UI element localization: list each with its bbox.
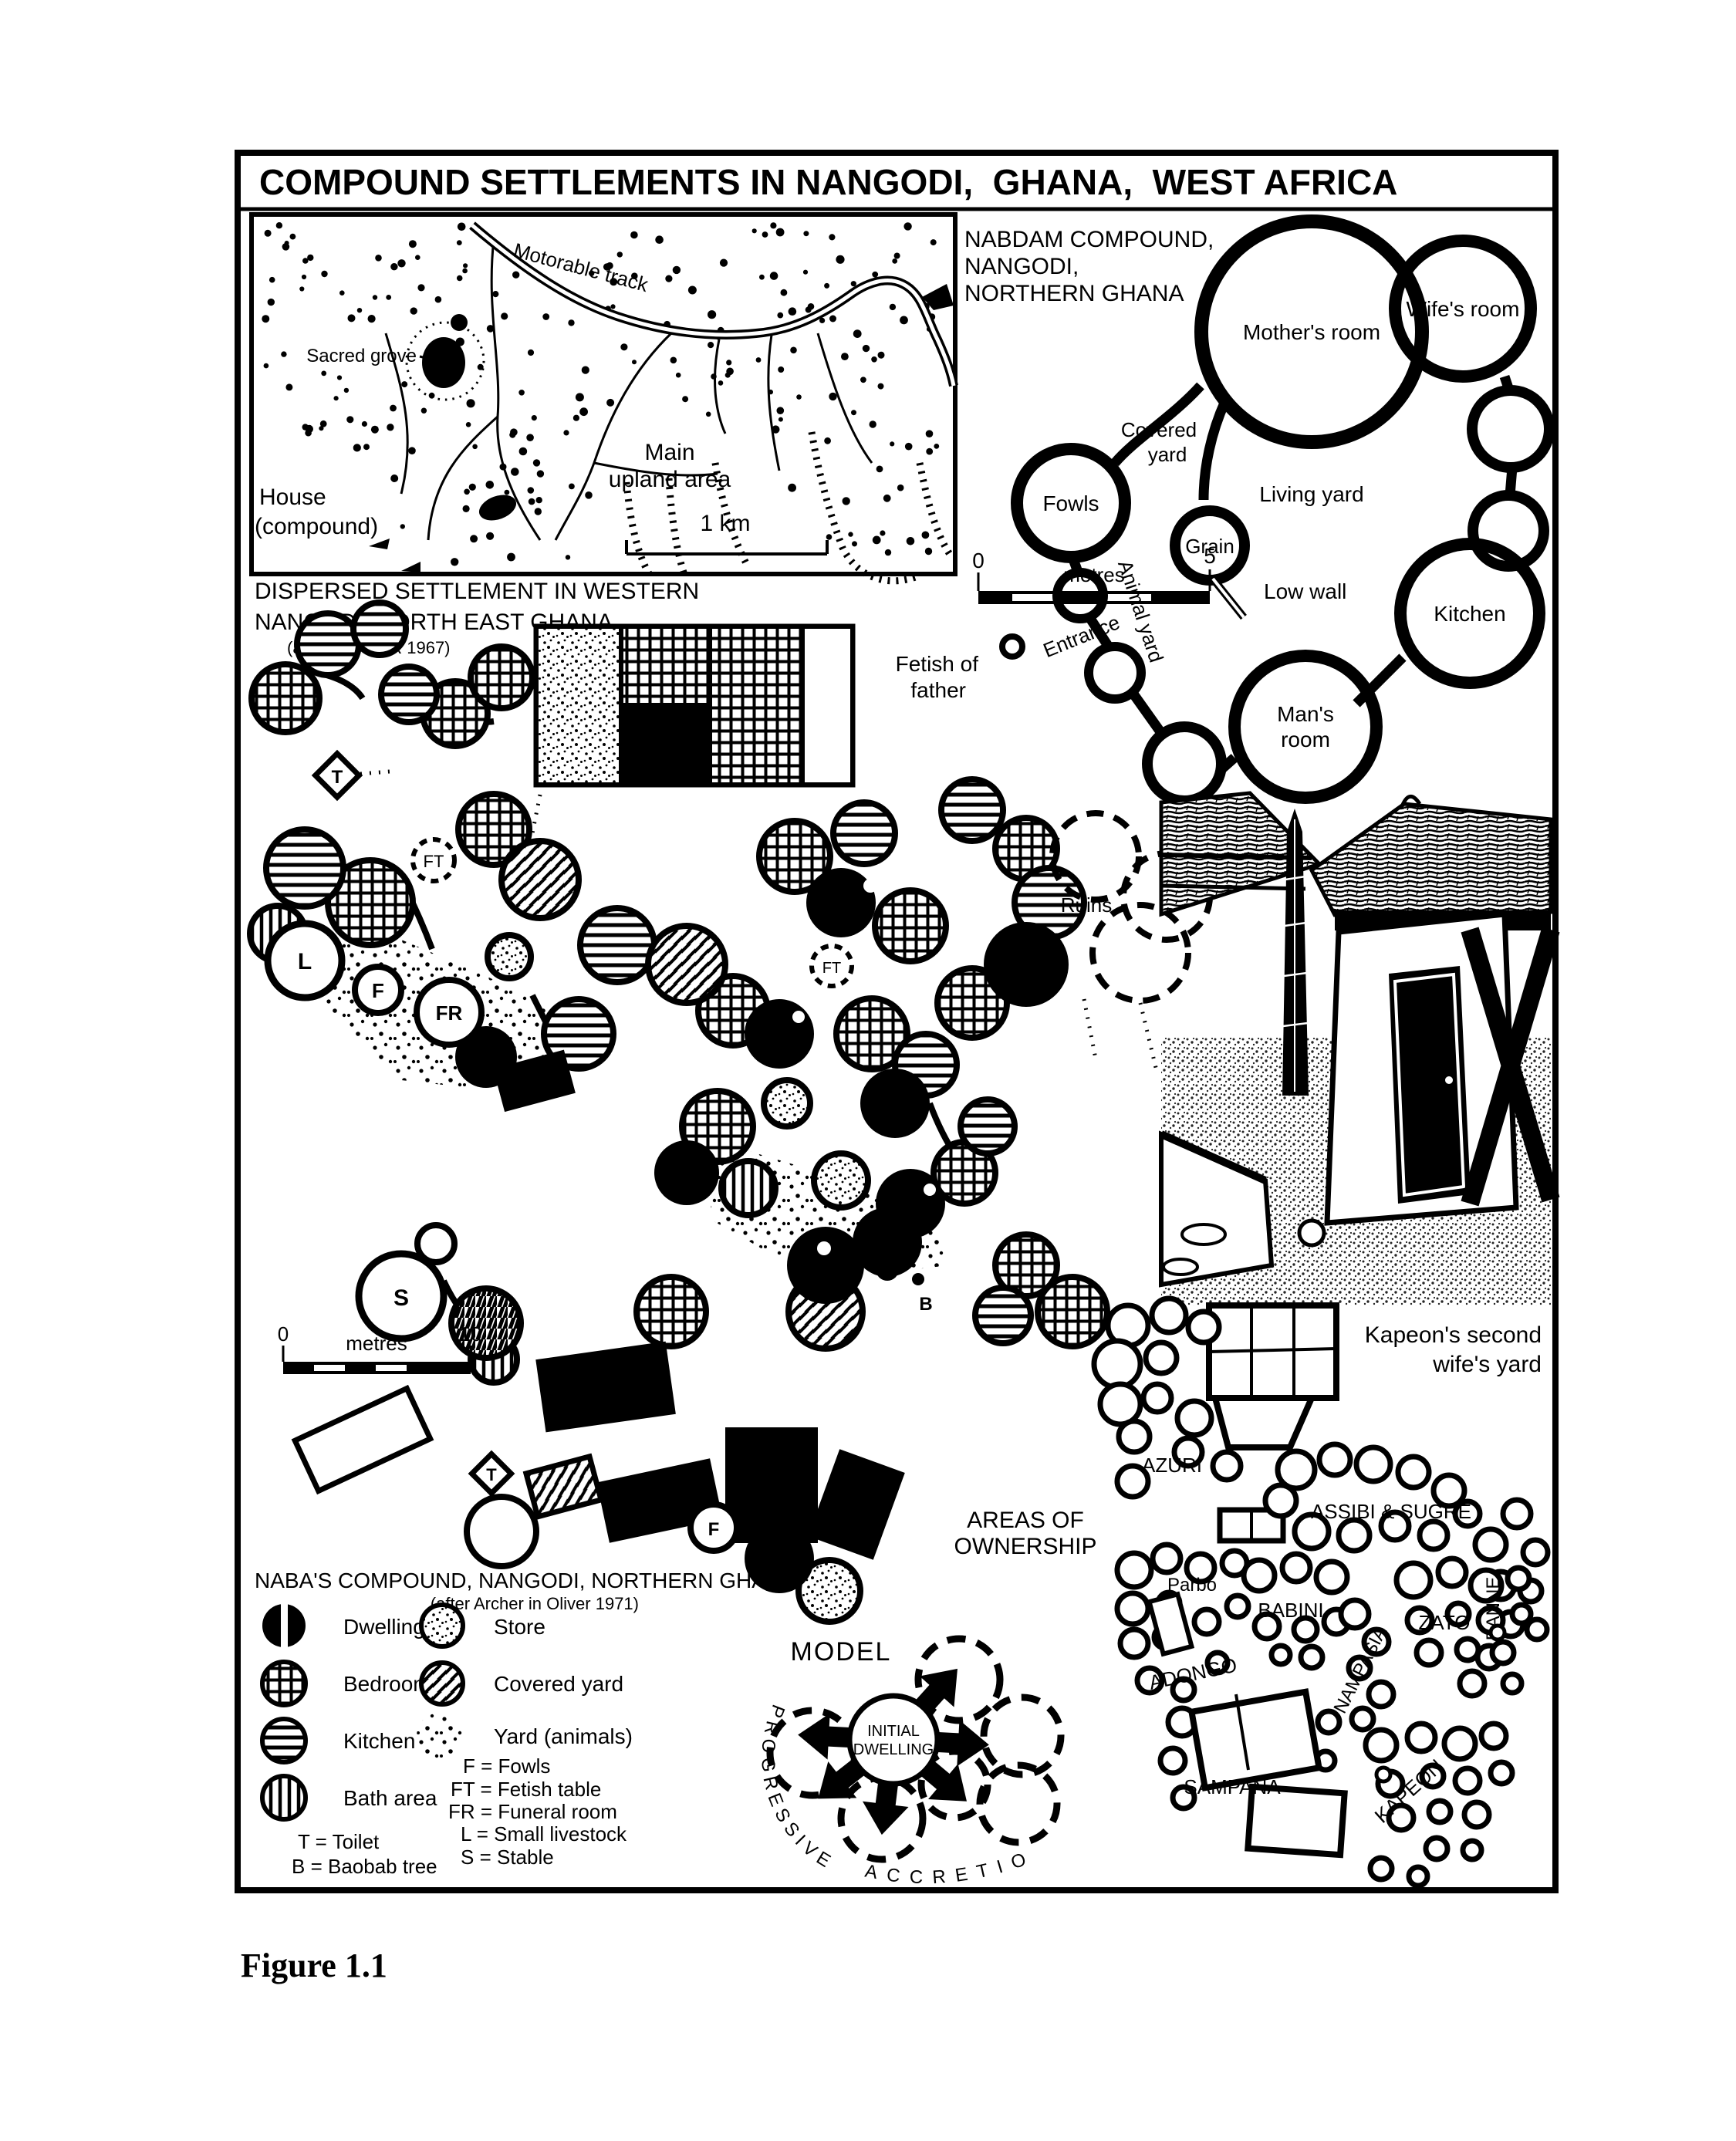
dispersed-settlement-map: Sacred grove Motorable track Main upland… [252, 214, 955, 581]
compound-sketch [1161, 793, 1551, 1306]
stable-marker: S [393, 1285, 409, 1311]
map-scale-label: 1 km [700, 511, 750, 536]
areas-of-ownership-label-2: OWNERSHIP [954, 1534, 1096, 1559]
toilet-marker-2: T [486, 1465, 497, 1484]
fetish-label-1: Fetish of [896, 652, 979, 676]
kapeon-o-ring [1376, 1768, 1390, 1781]
legend-covered-yard-label: Covered yard [494, 1672, 623, 1696]
nabdam-heading-3: NORTHERN GHANA [964, 281, 1184, 306]
map-caption-1: DISPERSED SETTLEMENT IN WESTERN [255, 579, 699, 604]
house-label-2: (compound) [255, 514, 378, 539]
parbo-label: Parbo [1167, 1575, 1217, 1596]
door-detail [1445, 1076, 1453, 1084]
areas-of-ownership-label-1: AREAS OF [967, 1508, 1084, 1533]
legend-funeral-room-abbr: FR = Funeral room [448, 1800, 617, 1823]
legend-fetish-table-abbr: FT = Fetish table [451, 1778, 601, 1801]
upland-label-2: upland area [609, 467, 731, 492]
legend-kitchen-label: Kitchen [343, 1729, 415, 1753]
yard-animals-icon [417, 1713, 463, 1759]
bath-area-icon [262, 1776, 306, 1819]
initial-dwelling-label-2: DWELLING [853, 1741, 934, 1758]
legend-stable-abbr: S = Stable [461, 1846, 554, 1869]
kitchen-label: Kitchen [1434, 602, 1505, 626]
legend-small-livestock-abbr: L = Small livestock [461, 1822, 627, 1846]
legend-baobab-abbr: B = Baobab tree [292, 1855, 437, 1878]
wifes-room-label: Wife's room [1407, 297, 1520, 321]
book-page: COMPOUND SETTLEMENTS IN NANGODI, GHANA, … [0, 0, 1736, 2141]
ruins-label: Ruins [1061, 893, 1112, 917]
fetish-table-marker: FT [424, 852, 444, 871]
toilet-marker: T [332, 767, 343, 788]
nabdam-heading-2: NANGODI, [964, 254, 1079, 279]
living-yard-label: Living yard [1259, 482, 1363, 506]
fowls-marker-2: F [708, 1519, 720, 1540]
plan-scale-max: 10 [460, 1322, 482, 1346]
upland-label-1: Main [644, 440, 694, 465]
page-caption: Figure 1.1 [241, 1947, 387, 1984]
model-title: MODEL [791, 1637, 892, 1667]
fowls-marker: F [372, 979, 384, 1002]
plan-scale-unit: metres [346, 1332, 407, 1355]
covered-yard-icon [421, 1663, 463, 1704]
zato-label: ZATO [1419, 1611, 1471, 1634]
initial-dwelling-label-1: INITIAL [867, 1723, 920, 1740]
pot [1299, 1221, 1324, 1245]
legend-dwelling-label: Dwelling [343, 1615, 425, 1639]
grain-label: Grain [1185, 535, 1234, 558]
legend-fowls-abbr: F = Fowls [463, 1754, 550, 1778]
mans-room-label-1: Man's [1277, 702, 1334, 726]
house-label-1: House [259, 485, 326, 510]
naba-caption-credit: (after Archer in Oliver 1971) [431, 1594, 639, 1613]
sacred-grove-label: Sacred grove [306, 346, 417, 366]
small-livestock-marker: L [298, 949, 312, 974]
fowls-label: Fowls [1042, 491, 1099, 515]
legend-bath-label: Bath area [343, 1786, 437, 1810]
legend-toilet-abbr: T = Toilet [298, 1830, 380, 1853]
babini-label: BABINI [1258, 1599, 1323, 1622]
legend-bedroom-label: Bedroom [343, 1672, 431, 1696]
nabdam-scale-zero: 0 [972, 549, 985, 572]
low-wall-label: Low wall [1264, 579, 1346, 603]
sampana-label: SAMPANA [1184, 1775, 1281, 1798]
assibi-sugre-label: ASSIBI & SUGRE [1311, 1500, 1471, 1523]
fetish-label-2: father [910, 678, 966, 702]
figure-canvas: COMPOUND SETTLEMENTS IN NANGODI, GHANA, … [0, 0, 1736, 2141]
fetish-table-marker-2: FT [822, 960, 841, 977]
initial-dwelling-circle [849, 1696, 937, 1784]
plan-rect-structure [536, 626, 853, 785]
store-icon [421, 1605, 463, 1646]
kapeon-note-1: Kapeon's second [1365, 1322, 1542, 1348]
naba-caption: NABA'S COMPOUND, NANGODI, NORTHERN GHANA [255, 1569, 796, 1592]
azuri-label: AZURI [1142, 1454, 1202, 1477]
plan-scale-zero: 0 [278, 1322, 289, 1346]
covered-yard-label-1: Covered [1121, 418, 1197, 441]
kitchen-icon [262, 1719, 306, 1762]
banne-o-ring [1491, 1626, 1505, 1640]
mothers-room-label: Mother's room [1243, 320, 1380, 344]
nabdam-heading-1: NABDAM COMPOUND, [964, 227, 1214, 252]
baobab-marker: B [919, 1294, 932, 1315]
mans-room-label-2: room [1281, 728, 1330, 751]
funeral-room-marker: FR [436, 1001, 463, 1025]
legend-yard-animals-label: Yard (animals) [494, 1724, 633, 1748]
legend-store-label: Store [494, 1615, 545, 1639]
kapeon-note-2: wife's yard [1432, 1352, 1542, 1377]
bedroom-icon [262, 1662, 306, 1705]
covered-yard-label-2: yard [1148, 443, 1187, 466]
figure-title: COMPOUND SETTLEMENTS IN NANGODI, GHANA, … [259, 162, 1397, 202]
